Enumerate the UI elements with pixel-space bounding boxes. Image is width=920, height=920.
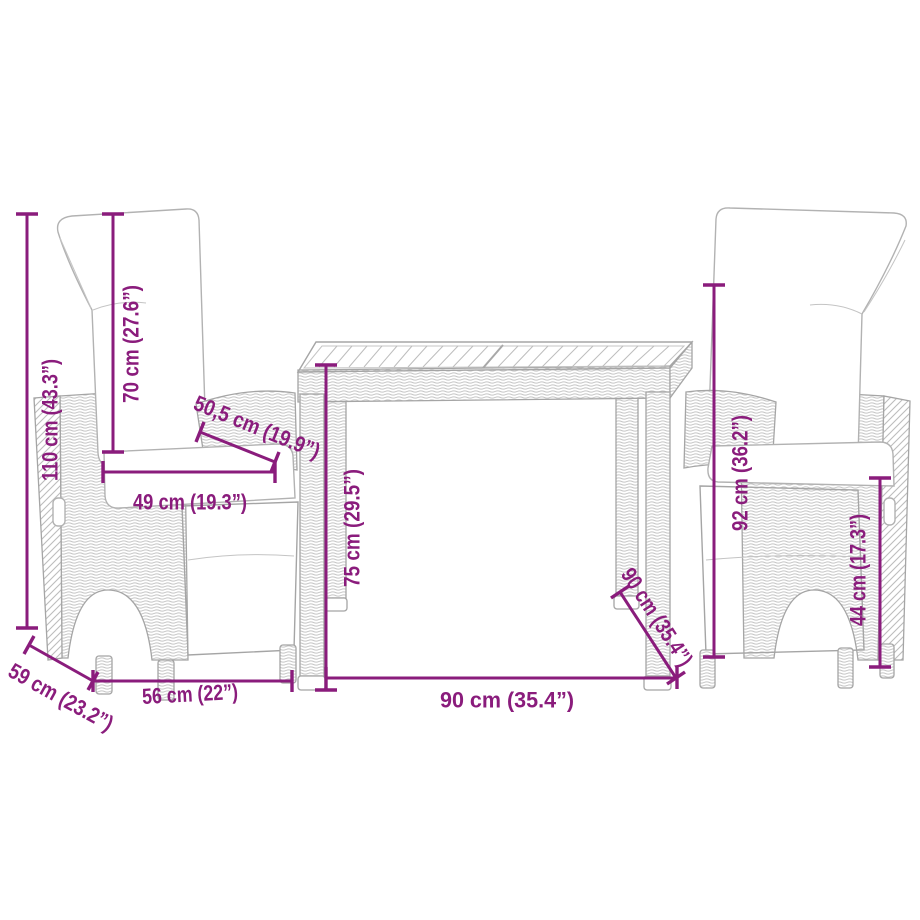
dimension-label: 90 cm (35.4”) (440, 688, 574, 713)
dimension-cap (24, 636, 34, 654)
dim-left-chair-base-width: 56 cm (22”) (93, 670, 292, 709)
dimension-label: 44 cm (17.3”) (846, 514, 871, 626)
right-chair-recline-handle (884, 498, 895, 525)
right-chair-leg (838, 648, 853, 688)
dimension-label: 92 cm (36.2”) (728, 415, 753, 531)
left-chair-front-panel (182, 502, 298, 655)
right-chair-outer-hatch-panel (878, 396, 910, 660)
right-chair-leg (880, 644, 894, 678)
dimension-label: 70 cm (27.6”) (119, 285, 144, 403)
left-chair-leg (96, 656, 112, 694)
dimension-label: 56 cm (22”) (141, 679, 238, 709)
diagram-canvas: 110 cm (43.3”) 70 cm (27.6”) 50,5 cm (19… (0, 0, 920, 920)
left-chair-recline-handle (53, 498, 65, 526)
dimension-label: 49 cm (19.3”) (133, 490, 247, 515)
table-slab-right-side (670, 342, 692, 398)
dimension-label: 110 cm (43.3”) (38, 359, 63, 481)
left-chair-front-panel-seam (188, 555, 294, 560)
right-chair-drawing (684, 208, 910, 688)
dim-table-width: 90 cm (35.4”) (326, 667, 677, 713)
dimension-label: 75 cm (29.5”) (340, 469, 365, 587)
table-front-left-foot (298, 676, 325, 690)
